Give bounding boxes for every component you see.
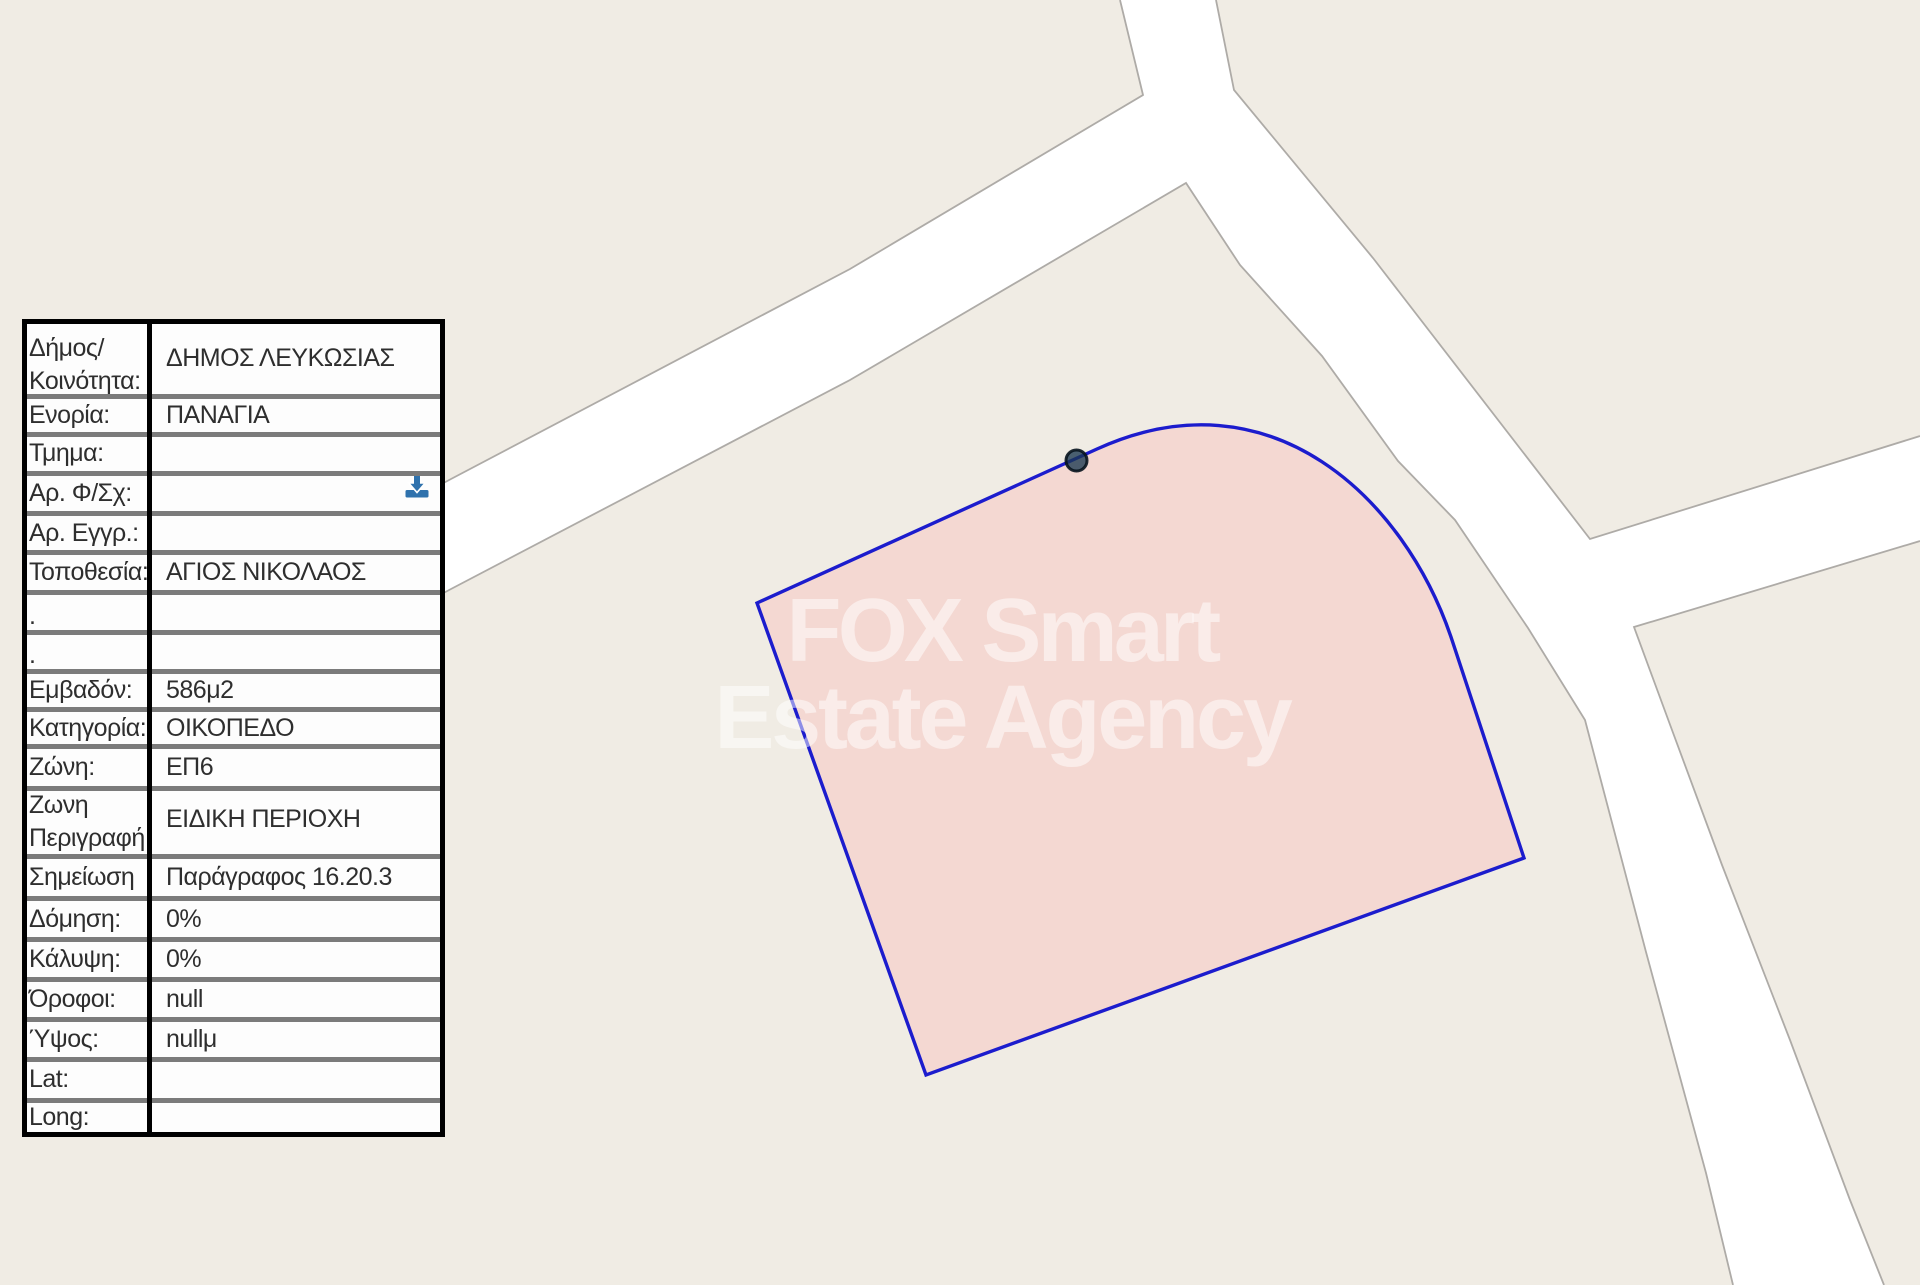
svg-text:FOX Smart: FOX Smart (787, 581, 1221, 681)
svg-text:Estate Agency: Estate Agency (714, 668, 1292, 768)
